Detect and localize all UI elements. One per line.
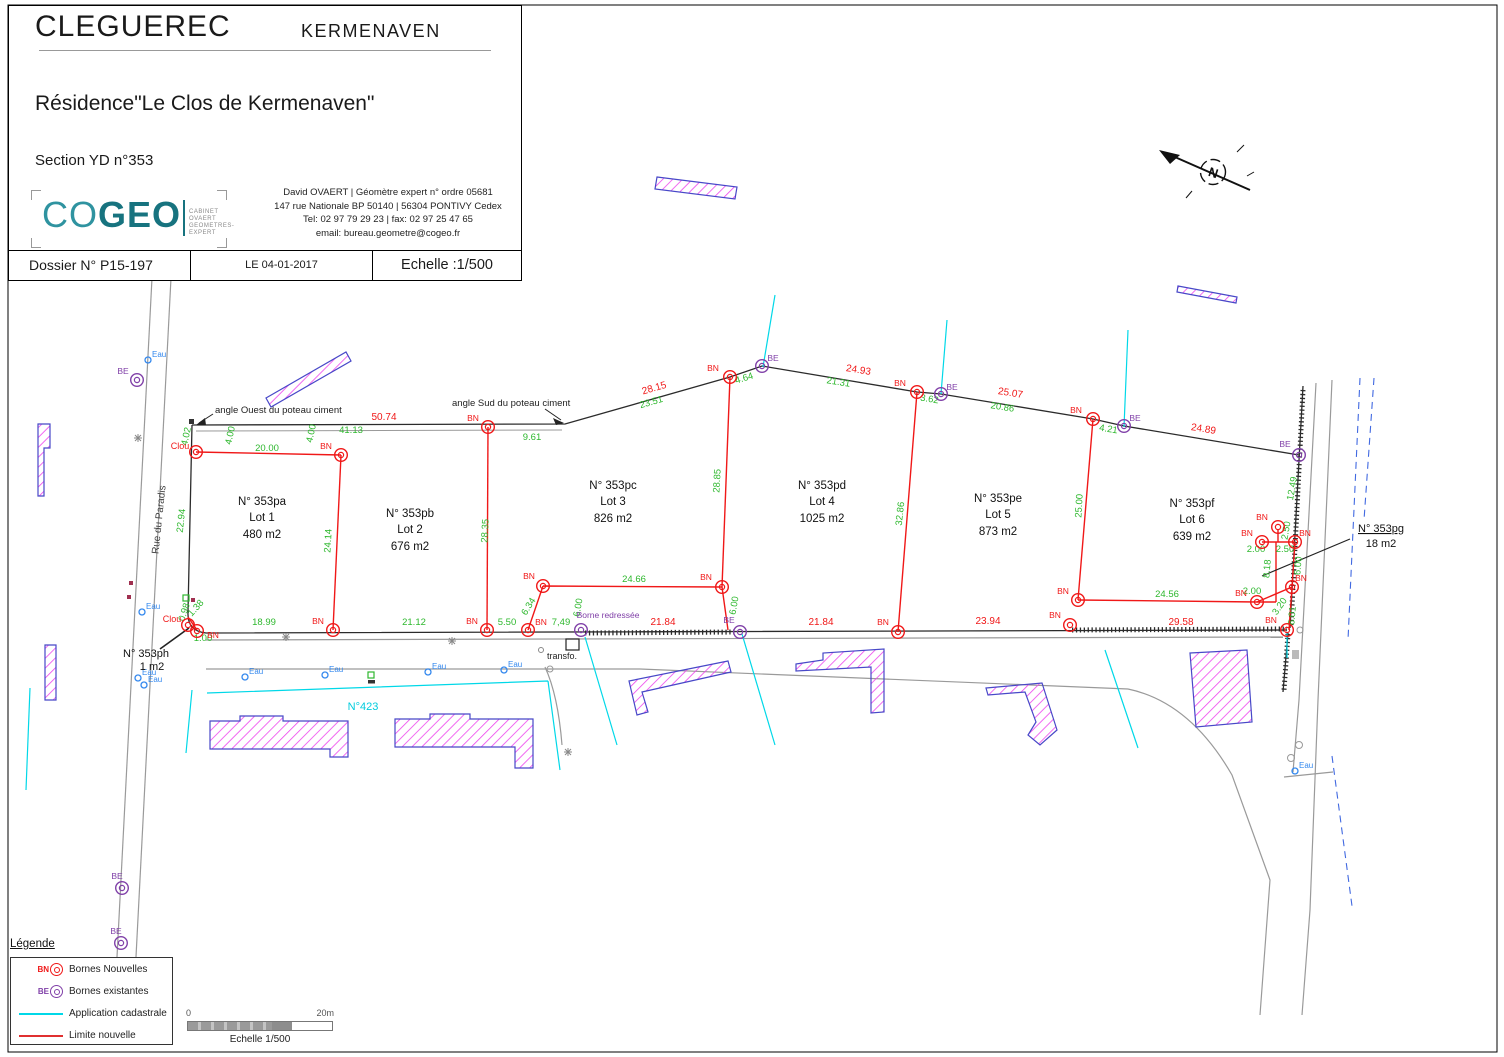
logo-divider — [183, 200, 185, 236]
eau-marker — [139, 609, 145, 615]
dim-green: 21.31 — [826, 375, 851, 390]
logo-bracket-tr — [217, 190, 227, 200]
bn-marker-label: BN — [1070, 405, 1082, 415]
logo-bracket-br — [217, 238, 227, 248]
be-marker — [116, 882, 129, 895]
road-top-parallel — [196, 430, 562, 431]
plan-date: LE 04-01-2017 — [191, 251, 373, 280]
section-title: Section YD n°353 — [35, 152, 153, 169]
be-ring-icon — [50, 985, 63, 998]
dim-green: 28.35 — [479, 519, 491, 543]
eau-marker-label: Eau — [146, 602, 160, 611]
dim-green: 2.50 — [1276, 544, 1295, 555]
black-mark-1 — [368, 680, 375, 684]
bn-marker-label: BN — [1049, 610, 1061, 620]
be-symbol-sample: BE — [11, 985, 69, 998]
scale-label: Echelle 1/500 — [186, 1034, 334, 1045]
transfo-box — [566, 639, 579, 650]
title-block: CLEGUEREC KERMENAVEN Résidence"Le Clos d… — [8, 5, 522, 281]
dim-red: 28.15 — [641, 380, 669, 398]
red-line-sample — [11, 1035, 69, 1037]
dim-green: 24.66 — [622, 574, 646, 585]
eau-marker — [135, 675, 141, 681]
lot-number: Lot 4 — [809, 496, 835, 508]
road-right-connector — [1284, 772, 1333, 777]
legend-title: Légende — [10, 938, 55, 950]
be-marker-label: BE — [117, 366, 129, 376]
limit-lot1-lot2 — [333, 455, 341, 630]
dim-green: 6.00 — [728, 596, 742, 616]
dim-red: 29.58 — [1168, 617, 1193, 628]
logo-subtitle-line2: GEOMETRES-EXPERT — [189, 223, 241, 237]
gray-circle-4 — [1297, 627, 1303, 633]
be-markers: BEBEBEBEBEBEBEBEBorne redressée — [110, 353, 1305, 949]
contact-line-2: 147 rue Nationale BP 50140 | 56304 PONTI… — [261, 200, 515, 214]
be-marker-label: BE — [1279, 439, 1291, 449]
blue-2 — [1364, 378, 1374, 520]
gray-circle-2 — [1296, 742, 1303, 749]
dim-green: 25.00 — [1073, 494, 1085, 518]
lot-parcel-number: N° 353pf — [1170, 498, 1216, 510]
gray-circle-3 — [1288, 755, 1295, 762]
gray-square-right — [1292, 650, 1299, 659]
bn-marker-label: BN — [207, 630, 219, 640]
bn-marker — [1275, 524, 1280, 529]
leader-353ph — [160, 628, 189, 649]
dim-green: 20.86 — [990, 400, 1015, 415]
dim-green: 6.01 — [1286, 606, 1299, 625]
logo-co: CO — [42, 194, 98, 235]
lot-area: 676 m2 — [391, 541, 429, 553]
be-marker — [115, 937, 128, 950]
dim-red: 23.94 — [975, 616, 1000, 627]
dim-green: 24.14 — [322, 529, 334, 553]
eau-marker — [425, 669, 431, 675]
dim-green: 5.50 — [498, 617, 517, 628]
scale-max: 20m — [316, 1008, 334, 1018]
legend-row-application-cadastrale: Application cadastrale — [11, 1003, 172, 1024]
leader-angle-sud — [545, 409, 561, 420]
be-marker-label: BE — [946, 382, 958, 392]
legend-row-bornes-nouvelles: BN Bornes Nouvelles — [11, 959, 172, 980]
dim-green: 9.61 — [523, 432, 542, 443]
building-south-6 — [1190, 650, 1252, 727]
building-top-right-bar — [1177, 286, 1237, 303]
lot-number: Lot 1 — [249, 512, 275, 524]
map-annotation: angle Sud du poteau ciment — [452, 398, 571, 409]
legend-box: BN Bornes Nouvelles BE Bornes existantes… — [10, 957, 173, 1045]
dim-green: 4.00 — [304, 423, 319, 443]
dossier-number: Dossier N° P15-197 — [9, 251, 191, 280]
north-tick-1 — [1237, 145, 1244, 152]
building-top-bar — [655, 177, 737, 199]
be-marker-label: BE — [767, 353, 779, 363]
logo-wordmark: COGEO — [42, 195, 181, 235]
dim-green: 20.00 — [255, 443, 279, 454]
map-annotation: Rue du Paradis — [150, 485, 168, 555]
bn-marker-label: BN — [894, 378, 906, 388]
lieu-dit-title: KERMENAVEN — [301, 21, 441, 42]
star-mark-1 — [282, 633, 290, 641]
logo-subtitle-line1: CABINET OVAERT — [189, 209, 241, 223]
eau-marker-label: Eau — [329, 665, 343, 674]
cyan-line-sample — [11, 1013, 69, 1015]
be-symbol-text: BE — [38, 987, 49, 996]
cadastral-cyan — [26, 295, 1287, 790]
dim-green: 32.86 — [894, 501, 907, 526]
bn-marker — [1067, 622, 1072, 627]
be-marker — [118, 940, 123, 945]
legend-row-limite-nouvelle: Limite nouvelle — [11, 1025, 172, 1046]
bn-marker-label: BN — [466, 616, 478, 626]
bn-marker-label: BN — [1299, 528, 1311, 538]
bn-marker-label: BN — [1235, 588, 1247, 598]
dim-green: 8.18 — [1261, 559, 1274, 578]
map-annotation: N° 353pg — [1358, 523, 1404, 535]
scale-segment-2 — [272, 1022, 292, 1030]
borne-redressee-label: Borne redressée — [577, 610, 640, 620]
scale-segment-3 — [292, 1022, 332, 1030]
legend-label-be: Bornes existantes — [69, 986, 149, 997]
eau-marker — [322, 672, 328, 678]
cyan-5 — [742, 634, 775, 745]
lot-number: Lot 2 — [397, 524, 423, 536]
eau-marker-label: Eau — [508, 660, 522, 669]
logo-bracket-bl — [31, 238, 41, 248]
lot-area: 1025 m2 — [800, 513, 845, 525]
road-rue-du-paradis-east — [133, 278, 171, 1015]
logo-subtitle: CABINET OVAERT GEOMETRES-EXPERT — [189, 209, 241, 237]
blue-dashed-lines — [1332, 378, 1374, 906]
title-rule — [39, 50, 491, 51]
cyan-3 — [1124, 330, 1128, 427]
green-square-1 — [368, 672, 374, 678]
residence-title: Résidence"Le Clos de Kermenaven" — [35, 92, 374, 116]
lot-parcel-number: N° 353pb — [386, 508, 434, 520]
dim-green: 24.56 — [1155, 589, 1179, 600]
bn-marker-label: BN — [877, 617, 889, 627]
leader-lines — [160, 409, 1350, 649]
dim-green: 21.12 — [402, 617, 426, 628]
lot-parcel-number: N° 353pd — [798, 480, 846, 492]
be-marker-label: BE — [723, 615, 735, 625]
lot-area: 826 m2 — [594, 513, 632, 525]
lot-parcel-number: N° 353pc — [589, 480, 637, 492]
blue-1 — [1348, 378, 1360, 640]
north-tick-2 — [1186, 191, 1192, 198]
scale-segment-1 — [188, 1022, 272, 1030]
lot-area: 639 m2 — [1173, 531, 1211, 543]
north-arrow — [1159, 145, 1254, 198]
driveway — [545, 667, 562, 745]
bn-marker-label: BN — [535, 617, 547, 627]
be-marker — [134, 377, 139, 382]
clou-marker-label: Clou — [171, 441, 190, 451]
legend-label-bn: Bornes Nouvelles — [69, 964, 147, 975]
bn-marker-label: BN — [1256, 512, 1268, 522]
eau-marker — [501, 667, 507, 673]
bn-marker-label: BN — [707, 363, 719, 373]
be-marker-label: BE — [111, 871, 123, 881]
legend-label-limite: Limite nouvelle — [69, 1030, 136, 1041]
lot-number: Lot 5 — [985, 509, 1011, 521]
building-left-sliver-1 — [38, 424, 50, 496]
eau-marker — [141, 682, 147, 688]
clou-marker — [185, 622, 190, 627]
bn-marker-label: BN — [1241, 528, 1253, 538]
leader-angle-ouest-head — [196, 418, 206, 425]
building-south-2 — [395, 714, 533, 768]
building-south-5 — [986, 683, 1057, 745]
dim-green: 12.49 — [1285, 476, 1300, 501]
dim-green: 23.51 — [638, 394, 664, 411]
scale-bar: 0 20m Echelle 1/500 — [186, 1008, 334, 1048]
building-ruin-hatch — [266, 352, 351, 407]
lot-area: 480 m2 — [243, 529, 281, 541]
contact-line-3: Tel: 02 97 79 29 23 | fax: 02 97 25 47 6… — [261, 213, 515, 227]
star-mark-4 — [134, 434, 142, 442]
dim-green: 22.94 — [175, 508, 188, 533]
cogeo-logo: COGEO CABINET OVAERT GEOMETRES-EXPERT — [31, 190, 241, 252]
legend-row-bornes-existantes: BE Bornes existantes — [11, 981, 172, 1002]
lot-number: Lot 6 — [1179, 514, 1205, 526]
dim-red: 25.07 — [997, 386, 1024, 401]
map-annotation: 18 m2 — [1366, 538, 1397, 550]
dim-green: 41.13 — [339, 425, 363, 436]
poteau-ciment-mark — [189, 419, 194, 424]
plan-sheet: 4.024.0020.0041.134.009.6123.514.6421.31… — [0, 0, 1504, 1057]
bn-marker-label: BN — [1265, 615, 1277, 625]
eau-marker-label: Eau — [432, 662, 446, 671]
north-tick-3 — [1247, 172, 1254, 176]
map-annotation: N — [1207, 164, 1221, 181]
building-left-sliver-2 — [45, 645, 56, 700]
cyan-9 — [26, 688, 30, 790]
dim-red: 24.89 — [1190, 422, 1217, 437]
be-marker — [131, 374, 144, 387]
bn-symbol-text: BN — [37, 965, 49, 974]
lot-labels: N° 353paLot 1480 m2N° 353pbLot 2676 m2N°… — [238, 480, 1215, 553]
bn-ring-icon — [50, 963, 63, 976]
surveyor-contact: David OVAERT | Géomètre expert n° ordre … — [261, 186, 515, 240]
road-rue-du-paradis-west — [114, 278, 152, 1015]
be-marker-label: BE — [110, 926, 122, 936]
cyan-8 — [186, 690, 192, 753]
bn-marker-label: BN — [1057, 586, 1069, 596]
be-marker-label: BE — [1129, 413, 1141, 423]
eau-marker-label: Eau — [148, 675, 162, 684]
maroon-mark-2 — [127, 595, 131, 599]
legend-label-cadastrale: Application cadastrale — [69, 1008, 167, 1019]
eau-marker — [242, 674, 248, 680]
lot-number: Lot 3 — [600, 496, 626, 508]
lot-parcel-number: N° 353pa — [238, 496, 287, 508]
north-arrow-head — [1159, 150, 1180, 164]
blue-3 — [1332, 756, 1352, 906]
bn-marker-label: BN — [523, 571, 535, 581]
clou-marker-label: Clou — [163, 614, 182, 624]
dim-green: 2.00 — [1247, 544, 1266, 555]
logo-geo: GEO — [98, 194, 181, 235]
road-south-curve — [1128, 689, 1270, 1015]
dim-red: 21.84 — [808, 617, 833, 628]
map-annotation: 1 m2 — [140, 661, 164, 673]
eau-marker-label: Eau — [249, 667, 263, 676]
building-south-1 — [210, 716, 348, 757]
star-mark-2 — [448, 637, 456, 645]
dim-green: 28.85 — [711, 469, 723, 493]
borne-redressee-marker — [575, 624, 588, 637]
dim-green: 4.00 — [223, 425, 238, 445]
map-annotation: angle Ouest du poteau ciment — [215, 405, 342, 416]
maroon-mark-1 — [129, 581, 133, 585]
title-bottom-row: Dossier N° P15-197 LE 04-01-2017 Echelle… — [9, 250, 521, 280]
bn-marker-label: BN — [320, 441, 332, 451]
bn-symbol-sample: BN — [11, 963, 69, 976]
bn-marker — [1064, 619, 1077, 632]
cyan-4 — [585, 637, 617, 745]
road-south-inner — [206, 637, 1283, 640]
contact-line-1: David OVAERT | Géomètre expert n° ordre … — [261, 186, 515, 200]
lot-parcel-number: N° 353pe — [974, 493, 1022, 505]
star-mark-3 — [564, 748, 572, 756]
cyan-6 — [1105, 650, 1138, 748]
dim-green: 4.21 — [1098, 423, 1118, 437]
scale-zero: 0 — [186, 1008, 191, 1018]
map-annotation: N°423 — [348, 701, 379, 713]
bn-marker-label: BN — [1295, 573, 1307, 583]
map-annotation: N° 353ph — [123, 648, 169, 660]
logo-bracket-tl — [31, 190, 41, 200]
plan-scale: Echelle :1/500 — [373, 251, 521, 280]
dim-green: 18.99 — [252, 617, 276, 628]
bn-marker-label: BN — [467, 413, 479, 423]
lot-area: 873 m2 — [979, 526, 1017, 538]
dim-red: 24.93 — [845, 363, 872, 378]
green-dimension-labels: 4.024.0020.0041.134.009.6123.514.6421.31… — [175, 371, 1305, 644]
building-south-4 — [796, 649, 884, 713]
map-annotation: transfo. — [547, 651, 577, 661]
dim-red: 50.74 — [371, 412, 396, 423]
bn-marker-label: BN — [312, 616, 324, 626]
limit-lot3-lot4 — [722, 377, 730, 587]
transfo-dot — [539, 648, 544, 653]
bn-marker-label: BN — [700, 572, 712, 582]
contact-line-4: email: bureau.geometre@cogeo.fr — [261, 227, 515, 241]
eau-marker-label: Eau — [1299, 761, 1313, 770]
road-right-2 — [1302, 380, 1332, 1015]
eau-marker-label: Eau — [152, 350, 166, 359]
dim-green: 4.64 — [734, 371, 755, 387]
commune-title: CLEGUEREC — [35, 10, 231, 44]
dim-red: 21.84 — [650, 617, 675, 628]
dim-green: 7,49 — [552, 617, 571, 628]
scale-bar-graphic — [187, 1021, 333, 1031]
